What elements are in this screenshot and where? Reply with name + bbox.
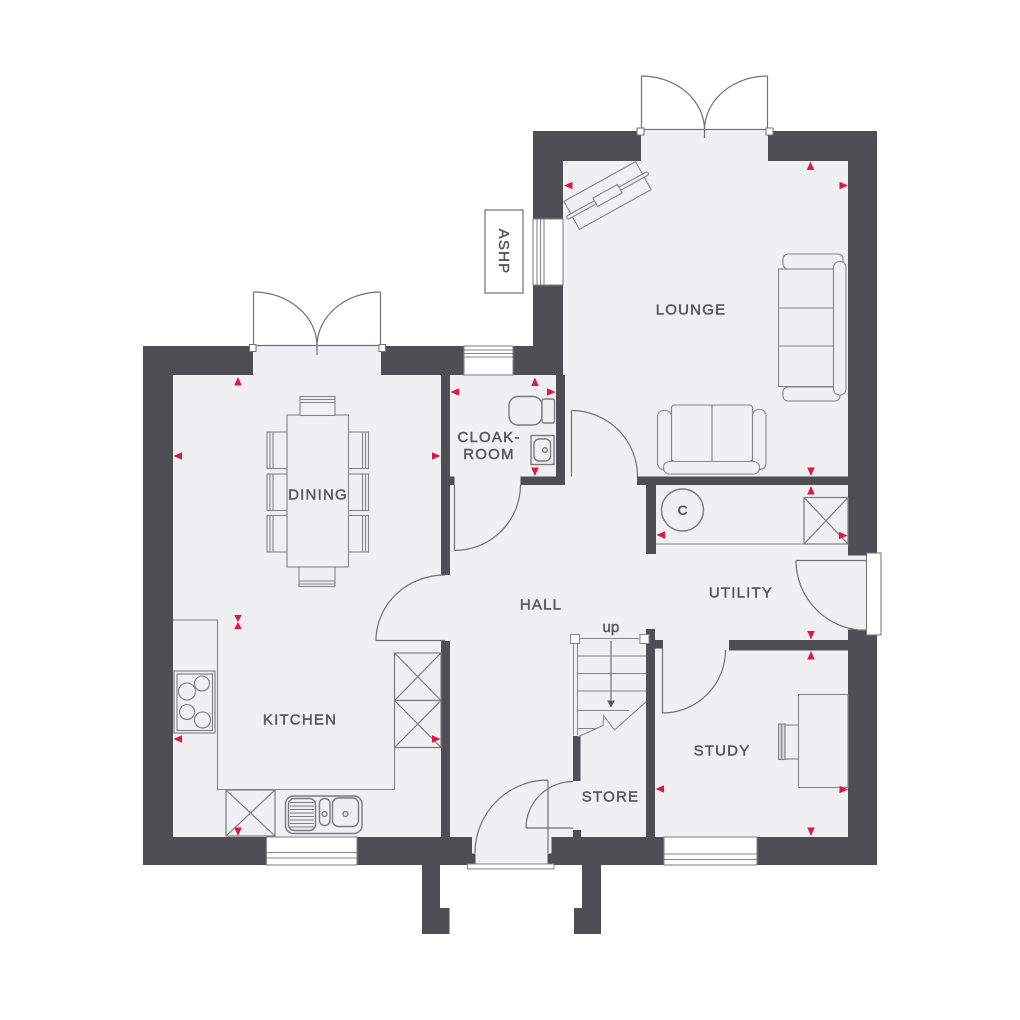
svg-text:ASHP: ASHP bbox=[495, 229, 512, 275]
svg-text:STORE: STORE bbox=[582, 789, 639, 806]
svg-text:KITCHEN: KITCHEN bbox=[263, 712, 337, 729]
svg-text:UTILITY: UTILITY bbox=[709, 585, 773, 602]
svg-text:DINING: DINING bbox=[288, 487, 348, 504]
svg-text:CLOAK-: CLOAK- bbox=[457, 429, 520, 446]
svg-text:ROOM: ROOM bbox=[463, 446, 514, 463]
svg-text:HALL: HALL bbox=[520, 597, 562, 614]
svg-text:LOUNGE: LOUNGE bbox=[656, 302, 727, 319]
svg-text:C: C bbox=[677, 502, 687, 518]
svg-text:up: up bbox=[603, 619, 620, 636]
svg-text:STUDY: STUDY bbox=[694, 743, 751, 760]
